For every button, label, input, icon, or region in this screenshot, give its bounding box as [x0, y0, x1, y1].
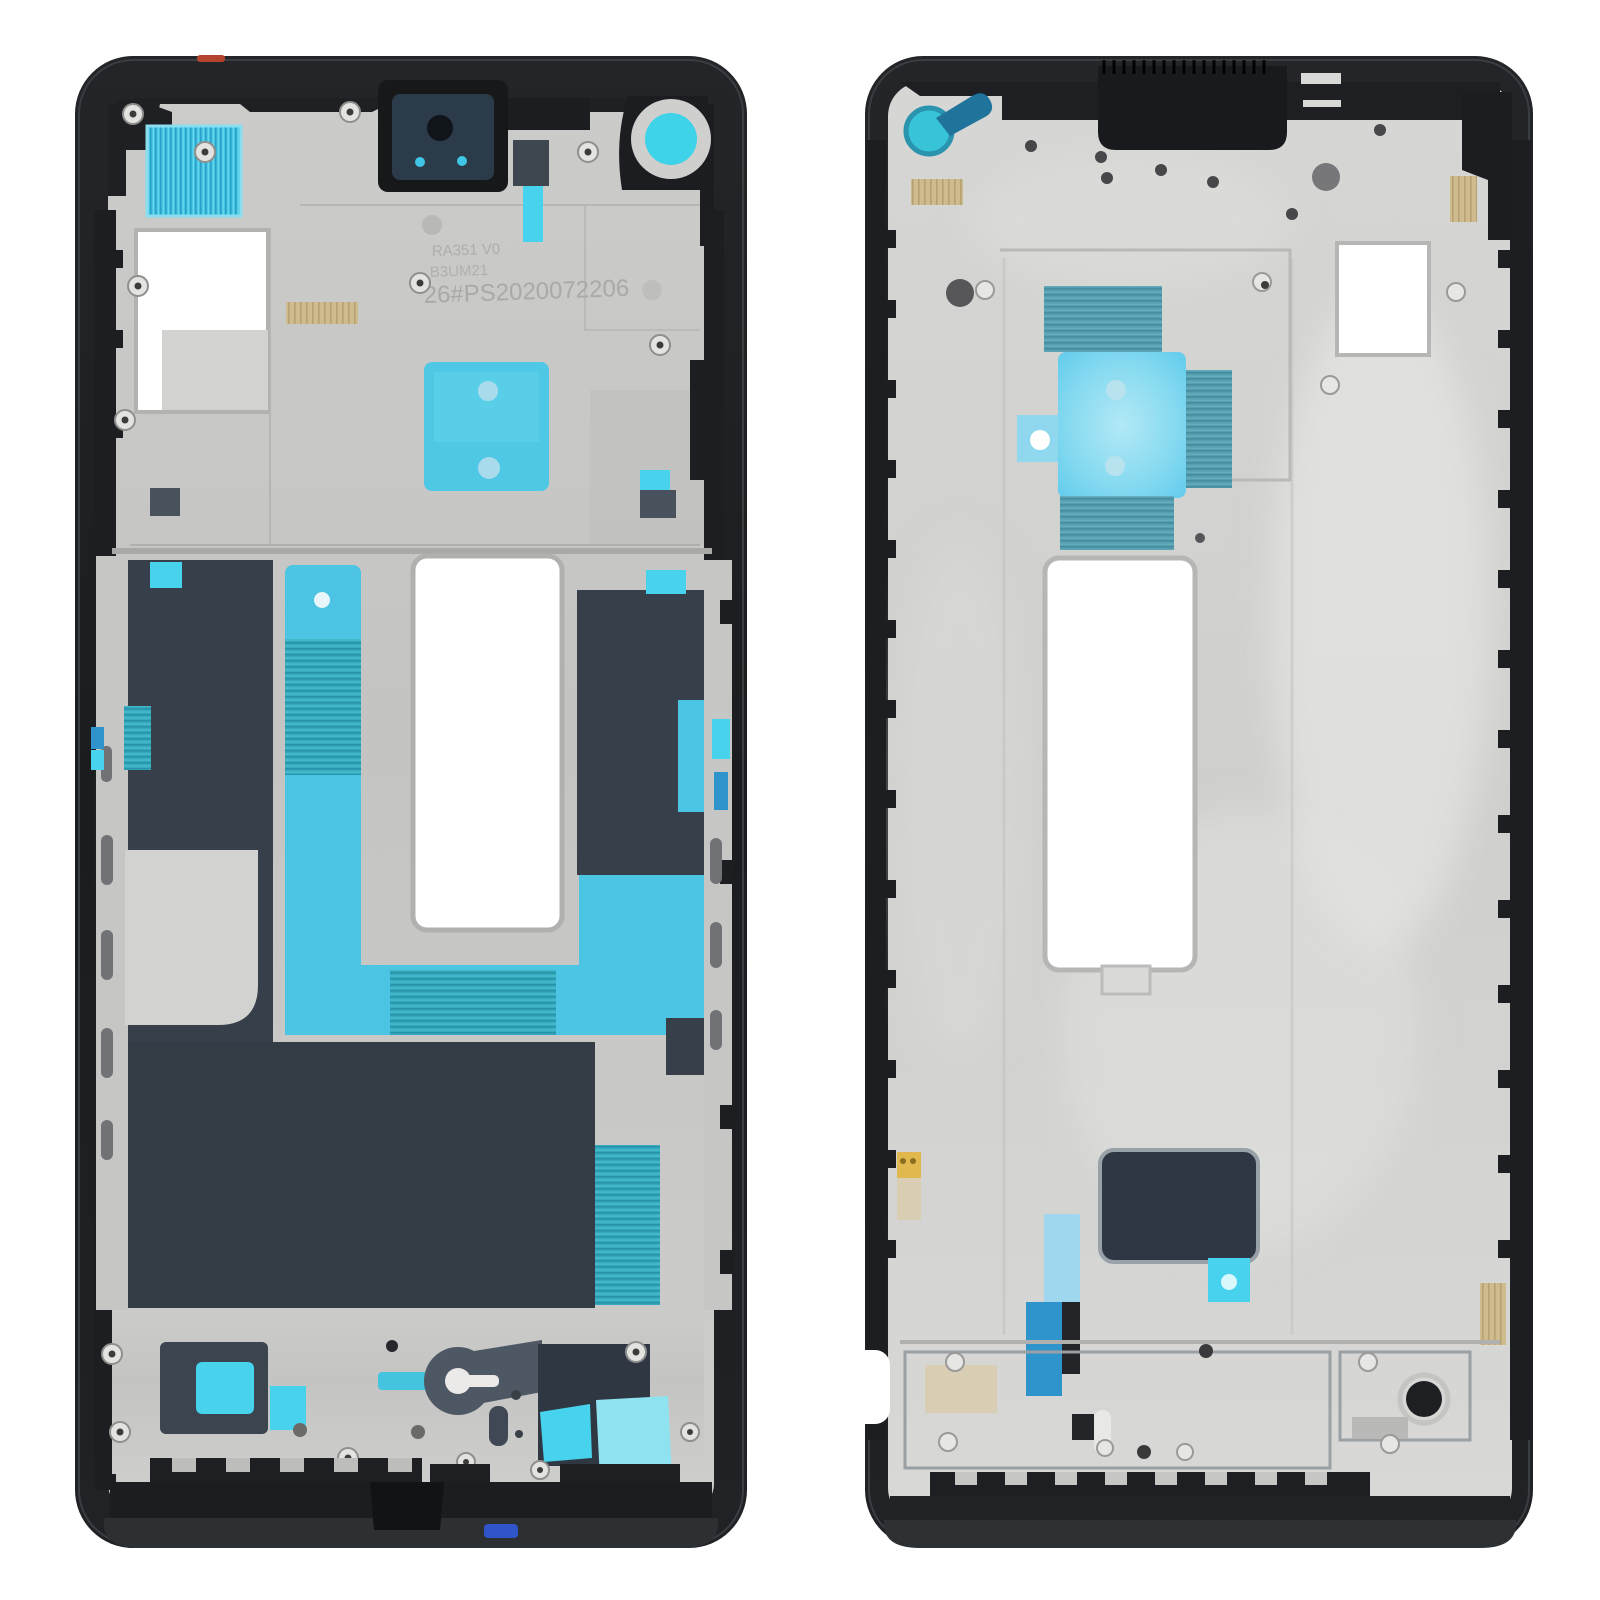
svg-text:B3UM21: B3UM21: [430, 262, 489, 281]
svg-text:RA351 V0: RA351 V0: [432, 241, 501, 260]
